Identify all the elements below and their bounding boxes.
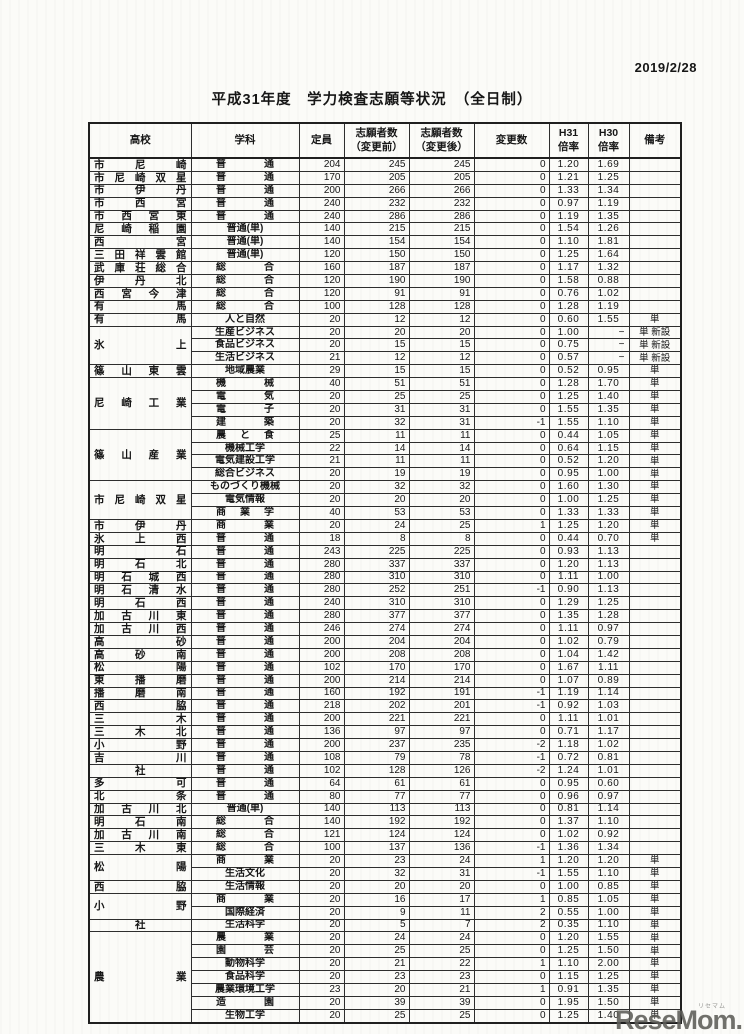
h31-ratio-cell: 0.60 <box>549 313 588 326</box>
capacity-cell: 218 <box>299 700 344 713</box>
h30-ratio-cell: 1.14 <box>588 803 629 816</box>
school-name-cell: 農業 <box>89 932 191 1023</box>
h31-ratio-cell: 0.91 <box>549 984 588 997</box>
h30-ratio-cell: 1.25 <box>588 171 629 184</box>
h30-ratio-cell: 1.00 <box>588 571 629 584</box>
applicants-after-cell: 14 <box>409 442 474 455</box>
h30-ratio-cell: 1.13 <box>588 545 629 558</box>
change-count-cell: 0 <box>474 610 549 623</box>
capacity-cell: 20 <box>299 906 344 919</box>
change-count-cell: 0 <box>474 249 549 262</box>
col-header-applicants-after: 志願者数 （変更後） <box>409 123 474 158</box>
remark-cell: 単 <box>629 468 681 481</box>
capacity-cell: 20 <box>299 416 344 429</box>
change-count-cell: 0 <box>474 880 549 893</box>
school-name-cell: 播磨南 <box>89 687 191 700</box>
capacity-cell: 20 <box>299 996 344 1009</box>
change-count-cell: 0 <box>474 777 549 790</box>
change-count-cell: -1 <box>474 842 549 855</box>
remark-cell <box>629 726 681 739</box>
table-row: 明石西普通24031031001.291.25 <box>89 597 681 610</box>
change-count-cell: 0 <box>474 481 549 494</box>
h30-ratio-cell: 0.79 <box>588 635 629 648</box>
h30-ratio-cell: 0.95 <box>588 365 629 378</box>
applicants-after-cell: 310 <box>409 571 474 584</box>
table-row: 吉川普通1087978-10.720.81 <box>89 751 681 764</box>
col-header-change-count: 変更数 <box>474 123 549 158</box>
table-row: 明石普通24322522500.931.13 <box>89 545 681 558</box>
capacity-cell: 121 <box>299 829 344 842</box>
applicants-before-cell: 187 <box>344 262 409 275</box>
school-name-cell: 明石南 <box>89 816 191 829</box>
remark-cell: 単 <box>629 519 681 532</box>
h30-ratio-cell: 1.19 <box>588 197 629 210</box>
remark-cell <box>629 790 681 803</box>
applicants-before-cell: 5 <box>344 919 409 932</box>
change-count-cell: 1 <box>474 984 549 997</box>
change-count-cell: 0 <box>474 403 549 416</box>
applicants-after-cell: 187 <box>409 262 474 275</box>
applicants-before-cell: 21 <box>344 958 409 971</box>
applicants-before-cell: 192 <box>344 816 409 829</box>
h31-ratio-cell: 0.57 <box>549 352 588 365</box>
applicants-before-cell: 20 <box>344 984 409 997</box>
applicants-after-cell: 77 <box>409 790 474 803</box>
capacity-cell: 18 <box>299 532 344 545</box>
remark-cell: 単 <box>629 867 681 880</box>
remark-cell <box>629 287 681 300</box>
remark-cell <box>629 210 681 223</box>
applicants-after-cell: 51 <box>409 378 474 391</box>
table-row: 社生活科学205720.351.10単 <box>89 919 681 932</box>
applicants-after-cell: 31 <box>409 416 474 429</box>
applicants-before-cell: 23 <box>344 971 409 984</box>
capacity-cell: 140 <box>299 816 344 829</box>
table-row: 有馬人と自然20121200.601.55単 <box>89 313 681 326</box>
change-count-cell: 0 <box>474 816 549 829</box>
applicants-before-cell: 24 <box>344 932 409 945</box>
applicants-after-cell: 251 <box>409 584 474 597</box>
applicants-before-cell: 11 <box>344 429 409 442</box>
remark-cell <box>629 558 681 571</box>
table-header-row: 高校 学科 定員 志願者数 （変更前） 志願者数 （変更後） 変更数 H31 倍… <box>89 123 681 158</box>
school-name-cell: 尼崎稲園 <box>89 223 191 236</box>
applicants-before-cell: 20 <box>344 326 409 339</box>
h31-ratio-cell: 1.28 <box>549 378 588 391</box>
department-cell: 生活情報 <box>191 880 299 893</box>
school-name-cell: 多可 <box>89 777 191 790</box>
remark-cell: 単 <box>629 442 681 455</box>
change-count-cell: 0 <box>474 313 549 326</box>
table-row: 篠山産業農と食25111100.441.05単 <box>89 429 681 442</box>
applicants-after-cell: 11 <box>409 455 474 468</box>
department-cell: 生産ビジネス <box>191 326 299 339</box>
capacity-cell: 20 <box>299 893 344 906</box>
h31-ratio-cell: 1.25 <box>549 945 588 958</box>
capacity-cell: 40 <box>299 378 344 391</box>
capacity-cell: 20 <box>299 1009 344 1022</box>
department-cell: 普通 <box>191 184 299 197</box>
applicants-before-cell: 204 <box>344 635 409 648</box>
applicants-after-cell: 12 <box>409 352 474 365</box>
applicants-after-cell: 21 <box>409 984 474 997</box>
school-name-cell: 市西宮 <box>89 197 191 210</box>
capacity-cell: 20 <box>299 932 344 945</box>
col-header-school: 高校 <box>89 123 191 158</box>
applicants-after-cell: 192 <box>409 816 474 829</box>
change-count-cell: -1 <box>474 867 549 880</box>
capacity-cell: 100 <box>299 842 344 855</box>
applicants-after-cell: 337 <box>409 558 474 571</box>
capacity-cell: 140 <box>299 803 344 816</box>
applicants-before-cell: 237 <box>344 739 409 752</box>
h31-ratio-cell: 1.54 <box>549 223 588 236</box>
applicants-before-cell: 232 <box>344 197 409 210</box>
department-cell: 総合 <box>191 262 299 275</box>
table-row: 西脇生活情報20202001.000.85単 <box>89 880 681 893</box>
h31-ratio-cell: 1.25 <box>549 249 588 262</box>
change-count-cell: 0 <box>474 223 549 236</box>
change-count-cell: 0 <box>474 971 549 984</box>
school-name-cell: 加古川南 <box>89 829 191 842</box>
h31-ratio-cell: 1.60 <box>549 481 588 494</box>
school-name-cell: 西宮今津 <box>89 287 191 300</box>
applicants-after-cell: 266 <box>409 184 474 197</box>
h31-ratio-cell: 1.21 <box>549 171 588 184</box>
capacity-cell: 102 <box>299 661 344 674</box>
applicants-before-cell: 190 <box>344 275 409 288</box>
applicants-after-cell: 7 <box>409 919 474 932</box>
applicants-before-cell: 25 <box>344 391 409 404</box>
remark-cell <box>629 661 681 674</box>
remark-cell <box>629 713 681 726</box>
change-count-cell: 0 <box>474 996 549 1009</box>
department-cell: 生活ビジネス <box>191 352 299 365</box>
h30-ratio-cell: 1.20 <box>588 519 629 532</box>
document-date: 2019/2/28 <box>635 60 697 75</box>
applicants-before-cell: 16 <box>344 893 409 906</box>
change-count-cell: 0 <box>474 339 549 352</box>
table-row: 播磨南普通160192191-11.191.14 <box>89 687 681 700</box>
capacity-cell: 120 <box>299 287 344 300</box>
school-name-cell: 明石北 <box>89 558 191 571</box>
remark-cell <box>629 623 681 636</box>
h31-ratio-cell: 0.35 <box>549 919 588 932</box>
remark-cell <box>629 184 681 197</box>
h31-ratio-cell: 0.64 <box>549 442 588 455</box>
h31-ratio-cell: 1.55 <box>549 416 588 429</box>
h30-ratio-cell: 1.20 <box>588 855 629 868</box>
school-name-cell: 市尼崎 <box>89 158 191 171</box>
department-cell: 総合 <box>191 275 299 288</box>
applicants-after-cell: 12 <box>409 313 474 326</box>
department-cell: 商業 <box>191 855 299 868</box>
applicants-after-cell: 53 <box>409 507 474 520</box>
h30-ratio-cell: 1.70 <box>588 378 629 391</box>
applicants-before-cell: 61 <box>344 777 409 790</box>
h30-ratio-cell: 1.33 <box>588 507 629 520</box>
h30-ratio-cell: 1.00 <box>588 468 629 481</box>
h30-ratio-cell: 1.03 <box>588 700 629 713</box>
applicants-after-cell: 78 <box>409 751 474 764</box>
remark-cell: 単 <box>629 481 681 494</box>
school-name-cell: 北条 <box>89 790 191 803</box>
applicants-after-cell: 124 <box>409 829 474 842</box>
remark-cell <box>629 777 681 790</box>
school-name-cell: 市尼崎双星 <box>89 171 191 184</box>
school-name-cell: 篠山産業 <box>89 429 191 481</box>
applicants-after-cell: 15 <box>409 365 474 378</box>
department-cell: 食品科学 <box>191 971 299 984</box>
applicants-after-cell: 24 <box>409 855 474 868</box>
applicants-after-cell: 91 <box>409 287 474 300</box>
h30-ratio-cell: 1.13 <box>588 558 629 571</box>
h30-ratio-cell: 1.11 <box>588 661 629 674</box>
h30-ratio-cell: 1.17 <box>588 726 629 739</box>
applicants-after-cell: 31 <box>409 403 474 416</box>
applicants-after-cell: 61 <box>409 777 474 790</box>
h30-ratio-cell: 0.60 <box>588 777 629 790</box>
change-count-cell: 0 <box>474 545 549 558</box>
department-cell: 食品ビジネス <box>191 339 299 352</box>
h30-ratio-cell: 1.00 <box>588 906 629 919</box>
applicants-before-cell: 15 <box>344 365 409 378</box>
applicants-after-cell: 25 <box>409 945 474 958</box>
capacity-cell: 25 <box>299 429 344 442</box>
department-cell: 普通 <box>191 700 299 713</box>
table-row: 社普通102128126-21.241.01 <box>89 764 681 777</box>
school-name-cell: 西脇 <box>89 700 191 713</box>
h31-ratio-cell: 1.55 <box>549 867 588 880</box>
h30-ratio-cell: 1.14 <box>588 687 629 700</box>
remark-cell <box>629 223 681 236</box>
capacity-cell: 280 <box>299 571 344 584</box>
school-name-cell: 社 <box>89 919 191 932</box>
school-name-cell: 市伊丹 <box>89 519 191 532</box>
school-name-cell: 武庫荘総合 <box>89 262 191 275</box>
capacity-cell: 200 <box>299 739 344 752</box>
change-count-cell: -1 <box>474 751 549 764</box>
capacity-cell: 20 <box>299 958 344 971</box>
applicants-after-cell: 31 <box>409 867 474 880</box>
school-name-cell: 高砂南 <box>89 648 191 661</box>
table-row: 伊丹北総合12019019001.580.88 <box>89 275 681 288</box>
applicants-before-cell: 53 <box>344 507 409 520</box>
change-count-cell: 1 <box>474 893 549 906</box>
h31-ratio-cell: 1.25 <box>549 1009 588 1022</box>
capacity-cell: 20 <box>299 855 344 868</box>
applicants-after-cell: 126 <box>409 764 474 777</box>
department-cell: 普通(単) <box>191 803 299 816</box>
change-count-cell: 0 <box>474 623 549 636</box>
capacity-cell: 160 <box>299 687 344 700</box>
applicants-after-cell: 170 <box>409 661 474 674</box>
remark-cell <box>629 648 681 661</box>
change-count-cell: 2 <box>474 919 549 932</box>
h30-ratio-cell: 0.81 <box>588 751 629 764</box>
remark-cell <box>629 764 681 777</box>
capacity-cell: 20 <box>299 481 344 494</box>
applicants-before-cell: 124 <box>344 829 409 842</box>
applicants-before-cell: 12 <box>344 313 409 326</box>
table-row: 尼崎工業機械40515101.281.70単 <box>89 378 681 391</box>
h31-ratio-cell: 1.25 <box>549 391 588 404</box>
capacity-cell: 280 <box>299 610 344 623</box>
h30-ratio-cell: 1.25 <box>588 971 629 984</box>
h31-ratio-cell: 1.33 <box>549 184 588 197</box>
h31-ratio-cell: 1.20 <box>549 855 588 868</box>
change-count-cell: 0 <box>474 236 549 249</box>
department-cell: 普通 <box>191 764 299 777</box>
applicants-after-cell: 15 <box>409 339 474 352</box>
table-row: 多可普通64616100.950.60 <box>89 777 681 790</box>
h30-ratio-cell: 1.50 <box>588 945 629 958</box>
h31-ratio-cell: 1.02 <box>549 635 588 648</box>
department-cell: 生活文化 <box>191 867 299 880</box>
capacity-cell: 20 <box>299 971 344 984</box>
applicants-after-cell: 23 <box>409 971 474 984</box>
applicants-before-cell: 205 <box>344 171 409 184</box>
school-name-cell: 三木北 <box>89 726 191 739</box>
capacity-cell: 20 <box>299 391 344 404</box>
remark-cell <box>629 674 681 687</box>
school-name-cell: 有馬 <box>89 313 191 326</box>
applicants-after-cell: 377 <box>409 610 474 623</box>
h30-ratio-cell: 1.15 <box>588 442 629 455</box>
table-row: 三木東総合100137136-11.361.34 <box>89 842 681 855</box>
school-name-cell: 三木東 <box>89 842 191 855</box>
change-count-cell: 0 <box>474 391 549 404</box>
h31-ratio-cell: 1.55 <box>549 403 588 416</box>
h30-ratio-cell: 1.35 <box>588 403 629 416</box>
table-row: 氷上生産ビジネス20202001.00−単 新設 <box>89 326 681 339</box>
resemom-watermark: リセマム ReseMom. <box>615 1007 742 1034</box>
change-count-cell: 0 <box>474 429 549 442</box>
h31-ratio-cell: 0.85 <box>549 893 588 906</box>
change-count-cell: 0 <box>474 197 549 210</box>
department-cell: 機械工学 <box>191 442 299 455</box>
remark-cell <box>629 236 681 249</box>
remark-cell <box>629 687 681 700</box>
department-cell: 電気建設工学 <box>191 455 299 468</box>
h31-ratio-cell: 0.81 <box>549 803 588 816</box>
school-name-cell: 西宮 <box>89 236 191 249</box>
remark-cell <box>629 700 681 713</box>
change-count-cell: 0 <box>474 713 549 726</box>
change-count-cell: 0 <box>474 803 549 816</box>
department-cell: 普通 <box>191 751 299 764</box>
applicants-before-cell: 14 <box>344 442 409 455</box>
col-header-h31-ratio: H31 倍率 <box>549 123 588 158</box>
applicants-after-cell: 191 <box>409 687 474 700</box>
h30-ratio-cell: 1.20 <box>588 455 629 468</box>
remark-cell: 単 <box>629 494 681 507</box>
school-name-cell: 有馬 <box>89 300 191 313</box>
change-count-cell: 0 <box>474 932 549 945</box>
applicants-before-cell: 137 <box>344 842 409 855</box>
remark-cell <box>629 842 681 855</box>
h31-ratio-cell: 0.52 <box>549 455 588 468</box>
applicants-before-cell: 12 <box>344 352 409 365</box>
table-row: 三田祥雲館普通(単)12015015001.251.64 <box>89 249 681 262</box>
applicants-before-cell: 9 <box>344 906 409 919</box>
applicants-after-cell: 150 <box>409 249 474 262</box>
table-row: 市伊丹普通20026626601.331.34 <box>89 184 681 197</box>
change-count-cell: 1 <box>474 855 549 868</box>
remark-cell: 単 <box>629 984 681 997</box>
h31-ratio-cell: 1.24 <box>549 764 588 777</box>
h30-ratio-cell: 1.10 <box>588 919 629 932</box>
applicants-before-cell: 192 <box>344 687 409 700</box>
document-page: 2019/2/28 平成31年度 学力検査志願等状況 （全日制） 高校 学科 定… <box>0 0 744 1034</box>
capacity-cell: 20 <box>299 313 344 326</box>
applicants-before-cell: 286 <box>344 210 409 223</box>
remark-cell: 単 <box>629 919 681 932</box>
capacity-cell: 20 <box>299 468 344 481</box>
change-count-cell: 0 <box>474 262 549 275</box>
h30-ratio-cell: 1.55 <box>588 313 629 326</box>
capacity-cell: 140 <box>299 223 344 236</box>
applicants-before-cell: 23 <box>344 855 409 868</box>
applicants-before-cell: 128 <box>344 300 409 313</box>
h30-ratio-cell: 0.97 <box>588 790 629 803</box>
applicants-after-cell: 11 <box>409 906 474 919</box>
h31-ratio-cell: 0.93 <box>549 545 588 558</box>
applicants-after-cell: 204 <box>409 635 474 648</box>
applicants-before-cell: 15 <box>344 339 409 352</box>
department-cell: 電子 <box>191 403 299 416</box>
applicants-before-cell: 39 <box>344 996 409 1009</box>
capacity-cell: 20 <box>299 919 344 932</box>
department-cell: 普通 <box>191 532 299 545</box>
capacity-cell: 80 <box>299 790 344 803</box>
h30-ratio-cell: 0.92 <box>588 829 629 842</box>
table-row: 市西宮普通24023223200.971.19 <box>89 197 681 210</box>
table-row: 北条普通80777700.960.97 <box>89 790 681 803</box>
h30-ratio-cell: 1.64 <box>588 249 629 262</box>
applicants-after-cell: 154 <box>409 236 474 249</box>
h31-ratio-cell: 1.19 <box>549 210 588 223</box>
change-count-cell: 0 <box>474 171 549 184</box>
remark-cell <box>629 739 681 752</box>
applicants-after-cell: 11 <box>409 429 474 442</box>
h31-ratio-cell: 1.58 <box>549 275 588 288</box>
applicants-after-cell: 25 <box>409 1009 474 1022</box>
school-name-cell: 加古川西 <box>89 623 191 636</box>
department-cell: 普通 <box>191 648 299 661</box>
remark-cell <box>629 171 681 184</box>
capacity-cell: 40 <box>299 507 344 520</box>
h31-ratio-cell: 1.25 <box>549 519 588 532</box>
department-cell: 普通(単) <box>191 236 299 249</box>
remark-cell: 単 <box>629 855 681 868</box>
h31-ratio-cell: 0.52 <box>549 365 588 378</box>
capacity-cell: 280 <box>299 558 344 571</box>
remark-cell <box>629 803 681 816</box>
school-name-cell: 明石 <box>89 545 191 558</box>
change-count-cell: 0 <box>474 661 549 674</box>
h30-ratio-cell: 1.01 <box>588 764 629 777</box>
capacity-cell: 243 <box>299 545 344 558</box>
remark-cell: 単 <box>629 945 681 958</box>
capacity-cell: 64 <box>299 777 344 790</box>
remark-cell: 単 <box>629 893 681 906</box>
school-name-cell: 西脇 <box>89 880 191 893</box>
change-count-cell: 0 <box>474 571 549 584</box>
h31-ratio-cell: 1.10 <box>549 236 588 249</box>
school-name-cell: 三木 <box>89 713 191 726</box>
change-count-cell: 0 <box>474 790 549 803</box>
